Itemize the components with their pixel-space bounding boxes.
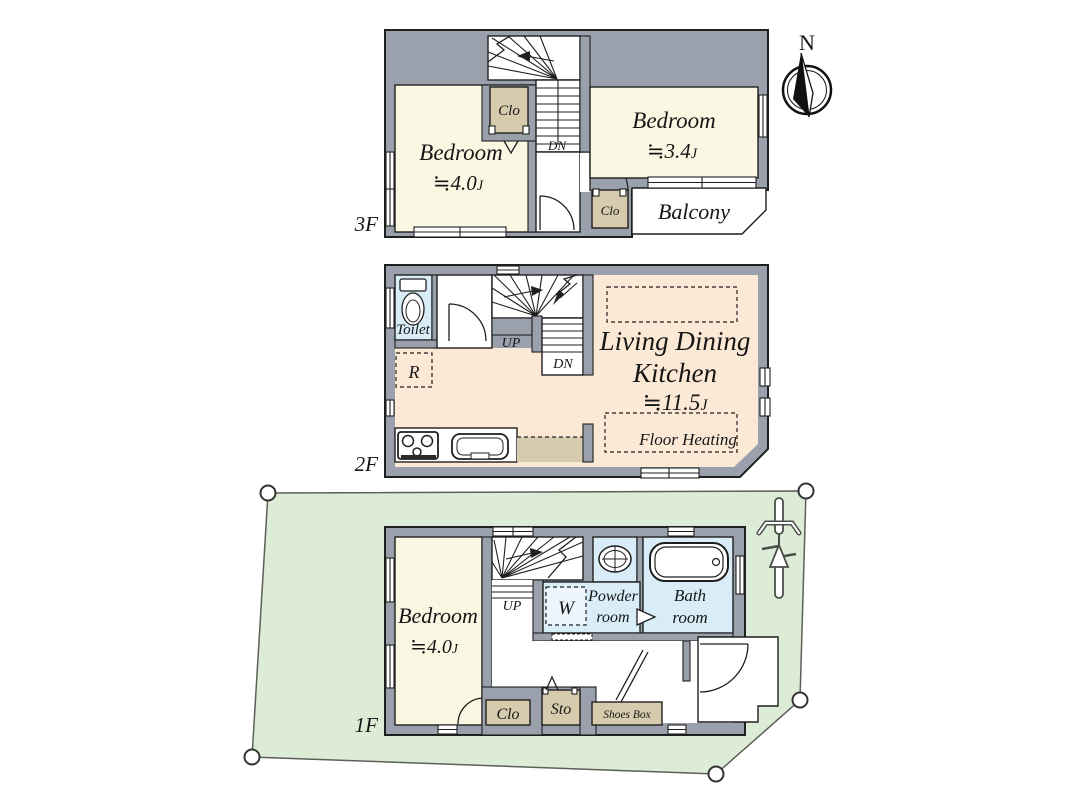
floor-2-toilet-wall-bottom bbox=[395, 340, 437, 348]
floor-2-toilet-label: Toilet bbox=[396, 322, 430, 338]
compass-north-label: N bbox=[799, 30, 815, 55]
sink-basin-icon bbox=[599, 546, 631, 572]
floor-2-stair-pole bbox=[532, 316, 542, 352]
floor-2-up-label: UP bbox=[502, 336, 521, 351]
floor-3-plan: DN Bedroom ≒4.0J Bedroom ≒3.4J Clo Clo B… bbox=[354, 30, 768, 237]
floor-1-bath-line1: Bath bbox=[674, 586, 706, 605]
floor-3-bedroom-left-name: Bedroom bbox=[419, 140, 502, 165]
floor-2-ldk-name-line1: Living Dining bbox=[599, 326, 751, 356]
floor-plan-drawing: N DN bbox=[0, 0, 1080, 810]
floor-1-powder-line1: Powder bbox=[587, 588, 639, 605]
floor-1-plan: UP bbox=[355, 527, 778, 737]
floor-2-wall-stub bbox=[583, 424, 593, 462]
floor-3-bedroom-right-name: Bedroom bbox=[632, 108, 715, 133]
floor-1-powder-line2: room bbox=[596, 609, 629, 626]
floor-3-bedroom-right-size: ≒3.4J bbox=[647, 139, 698, 163]
floor-1-bath-line2: room bbox=[672, 608, 707, 627]
floor-3-stair-wall-right bbox=[580, 36, 590, 152]
floor-plan-page: N DN bbox=[0, 0, 1080, 810]
floor-1-entrance-wall bbox=[683, 641, 690, 681]
floor-1-wall-hall-powder bbox=[533, 580, 543, 637]
floor-2-ldk-name-line2: Kitchen bbox=[632, 358, 717, 388]
toilet-icon bbox=[400, 279, 426, 325]
compass: N bbox=[783, 30, 831, 117]
bathtub-icon bbox=[650, 543, 728, 581]
floor-1-hall bbox=[492, 580, 533, 687]
floor-1-bedroom-wall-right bbox=[482, 537, 492, 695]
floor-2-counter-extension bbox=[517, 437, 583, 462]
floor-2-dn-label: DN bbox=[552, 357, 573, 372]
floor-2-toilet-wall bbox=[432, 275, 437, 348]
door-jamb bbox=[489, 126, 495, 134]
floor-3-corridor-wall-left bbox=[528, 141, 536, 232]
door-jamb bbox=[620, 189, 626, 196]
floor-2-hall bbox=[437, 275, 492, 348]
floor-1-bedroom-size: ≒4.0J bbox=[410, 636, 459, 658]
lot-corner-marker bbox=[709, 767, 724, 782]
lot-corner-marker bbox=[261, 486, 276, 501]
floor-3-closet-lower-label: Clo bbox=[601, 203, 620, 218]
door-jamb bbox=[543, 688, 548, 694]
floor-2-stair-wall-block bbox=[492, 318, 532, 335]
floor-3-closet-upper-label: Clo bbox=[498, 103, 520, 119]
door-jamb bbox=[523, 126, 529, 134]
floor-heating-label: Floor Heating bbox=[638, 430, 737, 449]
floor-1-shoes-box-label: Shoes Box bbox=[603, 709, 651, 721]
floor-3-stair-winder bbox=[488, 36, 580, 80]
door-jamb bbox=[572, 688, 577, 694]
floor-3-hall bbox=[536, 152, 580, 232]
floor-2-stair-wall-right bbox=[583, 275, 593, 375]
floor-2-ldk-size: ≒11.5J bbox=[643, 390, 709, 415]
floor-1-bedroom-room bbox=[395, 537, 482, 725]
floor-2-refrigerator-label: R bbox=[408, 362, 420, 382]
floor-3-bedroom-left-size: ≒4.0J bbox=[433, 171, 484, 195]
lot-corner-marker bbox=[245, 750, 260, 765]
floor-3-balcony-label: Balcony bbox=[658, 199, 730, 224]
floor-1-storage-label: Sto bbox=[551, 701, 571, 718]
lot-corner-marker bbox=[799, 484, 814, 499]
floor-2-label: 2F bbox=[355, 452, 379, 476]
floor-1-label: 1F bbox=[355, 713, 379, 737]
stove-icon bbox=[398, 432, 438, 459]
sliding-door-mark bbox=[552, 634, 592, 640]
door-jamb bbox=[593, 189, 599, 196]
floor-1-bedroom-name: Bedroom bbox=[398, 603, 478, 628]
floor-1-washer-label: W bbox=[558, 598, 576, 619]
lot-corner-marker bbox=[793, 693, 808, 708]
floor-2-plan: UP DN R bbox=[355, 265, 770, 478]
floor-1-closet-label: Clo bbox=[496, 706, 519, 723]
floor-1-up-label: UP bbox=[503, 599, 522, 614]
door-opening bbox=[580, 153, 590, 192]
floor-3-dn-label: DN bbox=[547, 138, 567, 153]
floor-3-label: 3F bbox=[354, 212, 379, 236]
sink-icon bbox=[452, 434, 508, 459]
